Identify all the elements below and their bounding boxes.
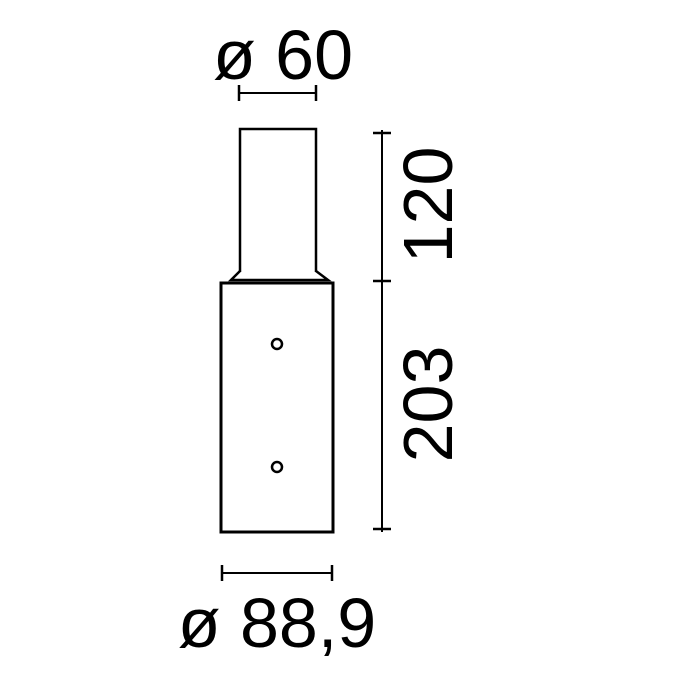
lower-body-outline [221,283,333,532]
top-diameter-label: ø 60 [213,16,353,94]
pole-adapter-drawing: ø 60 120 203 ø 88,9 [0,0,678,678]
lower-height-label: 203 [389,346,467,463]
upper-tube-outline [240,129,316,272]
upper-height-label: 120 [389,147,467,264]
tube-collar-flare [231,271,328,280]
upper-fixing-hole [272,339,282,349]
technical-drawing-canvas: ø 60 120 203 ø 88,9 [0,0,678,678]
lower-fixing-hole [272,462,282,472]
bottom-diameter-label: ø 88,9 [178,584,376,662]
